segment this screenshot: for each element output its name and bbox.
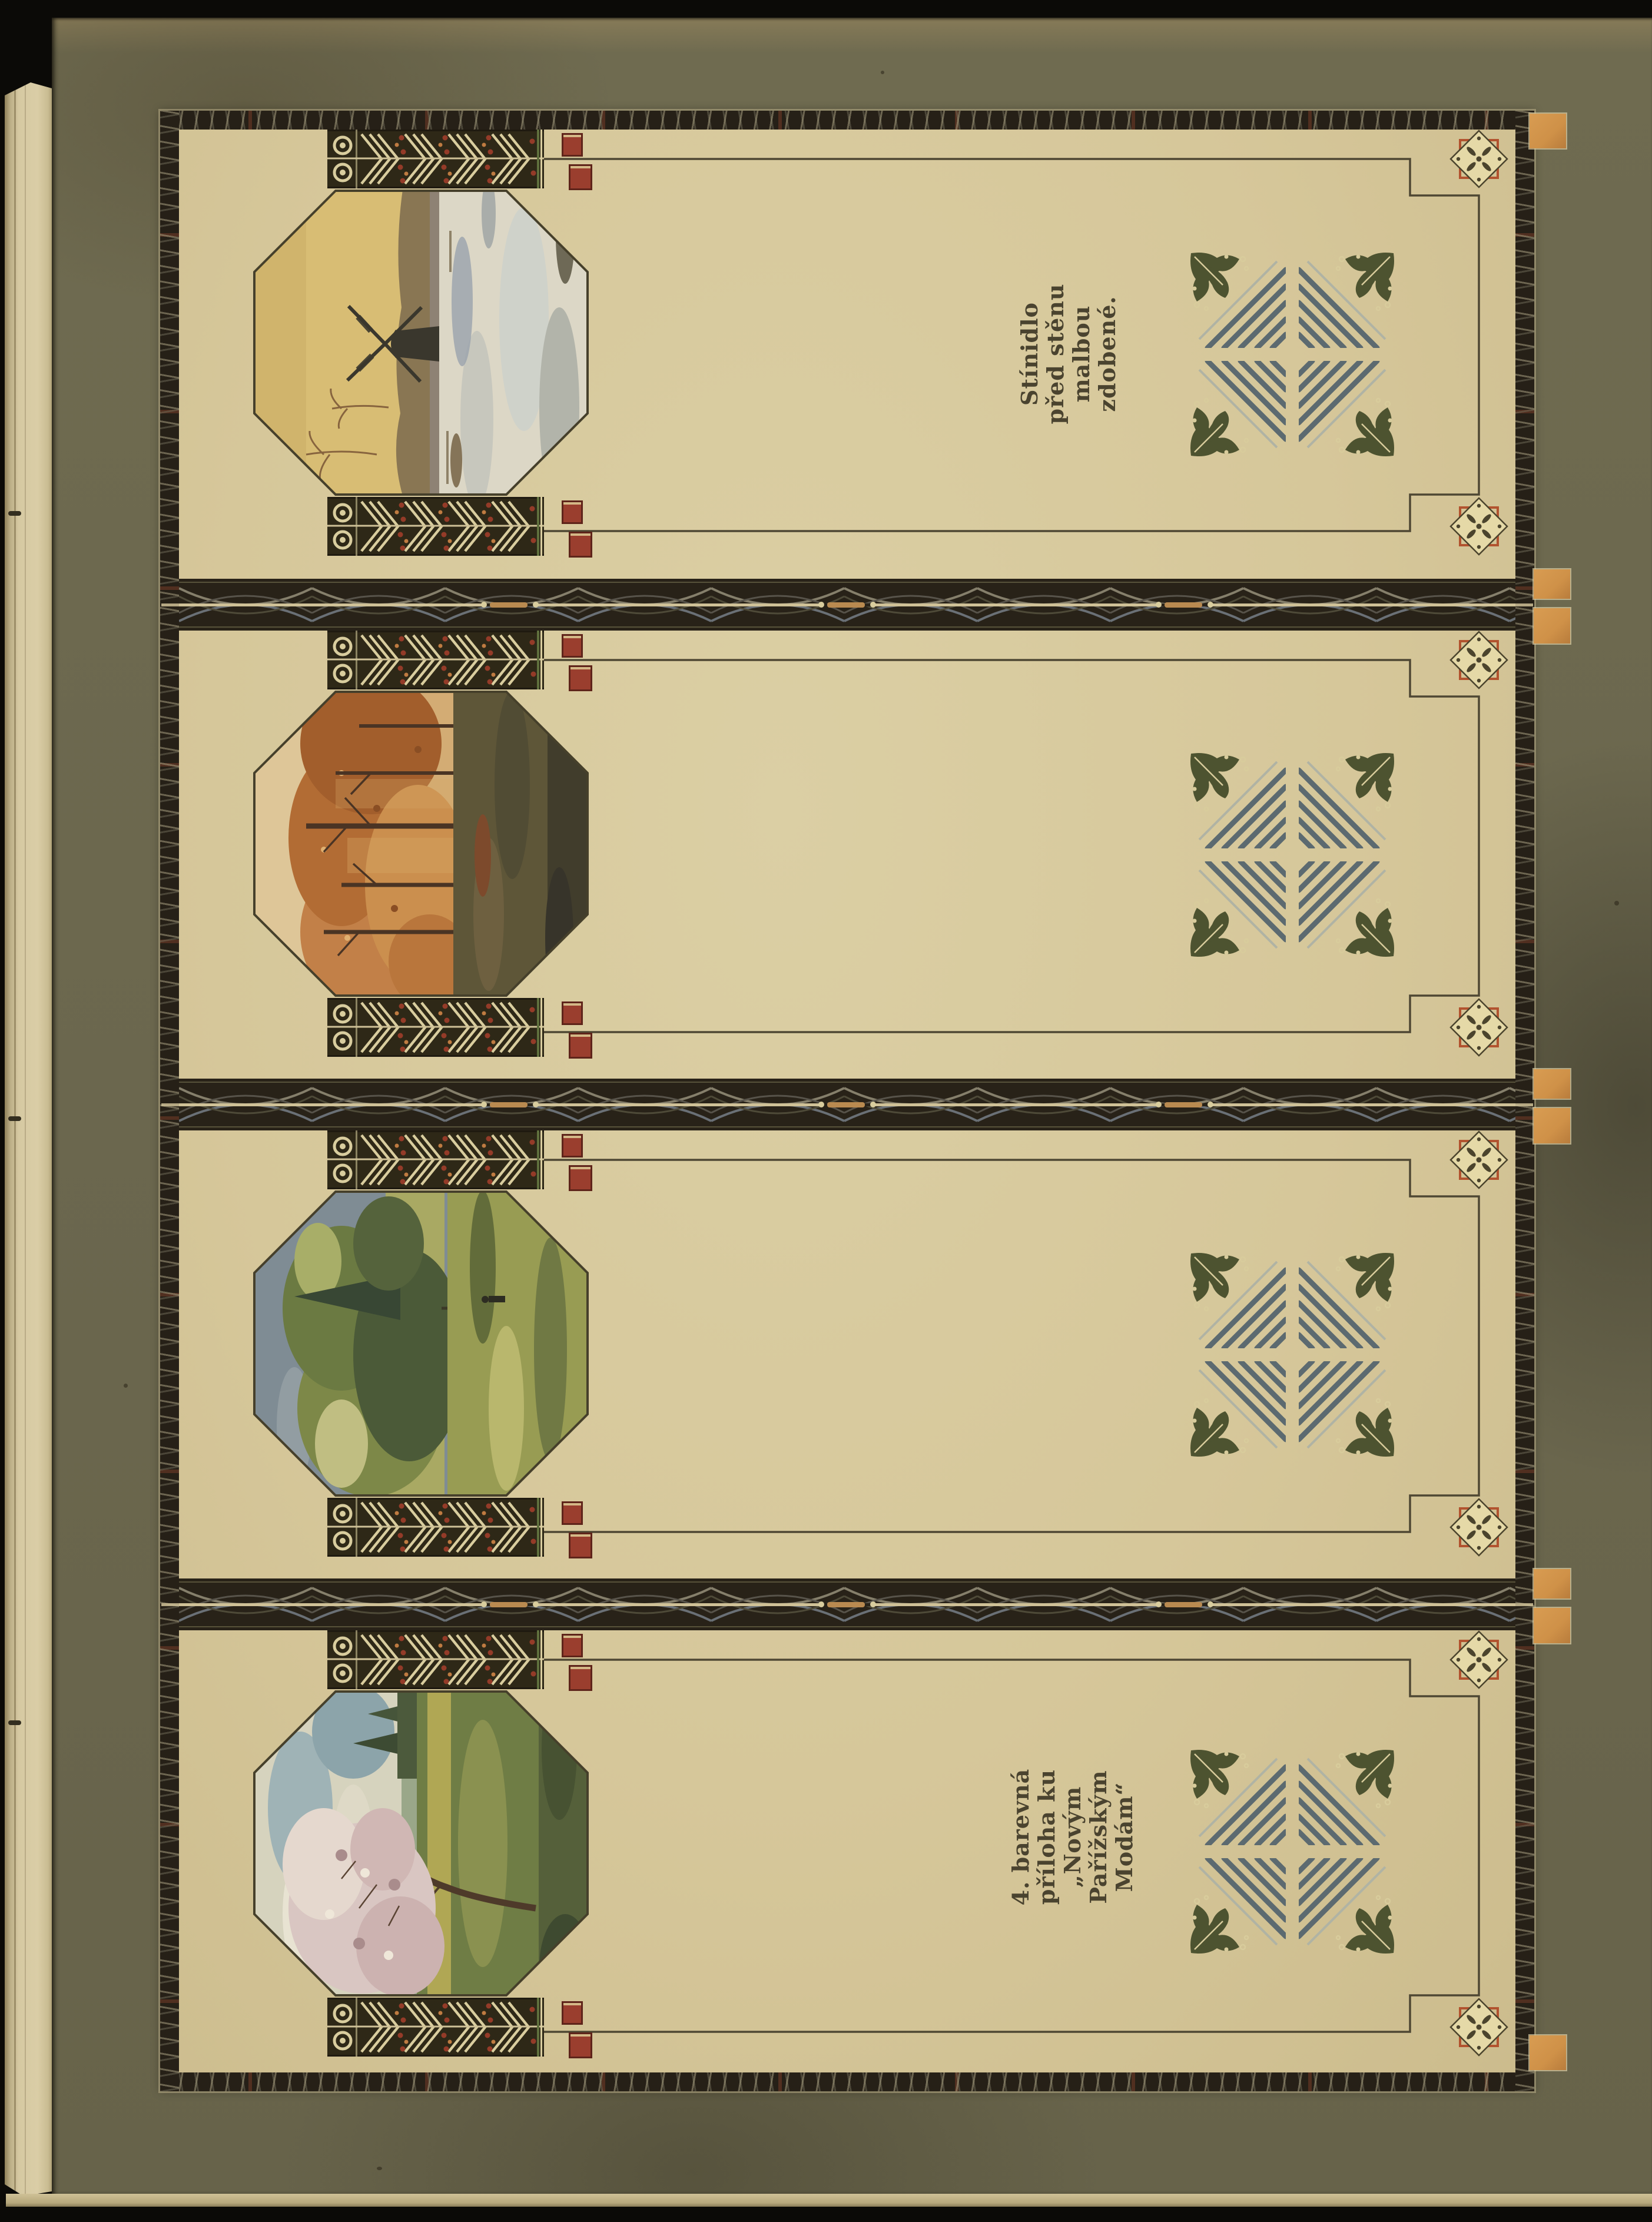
binding-stitch [8,1116,21,1121]
red-square-marker [562,1134,583,1158]
red-square-marker [569,2032,592,2058]
leaf-tile [1299,861,1395,957]
divider-ornament [179,1578,1515,1630]
page-bottom-edge [6,2194,1652,2207]
leaf-tile [1299,252,1395,348]
octagon-painting-autumn-forest [253,691,589,997]
divider-rule-stub [1515,603,1533,606]
speckle [377,2167,382,2170]
chevron-band [327,1498,544,1557]
caption-line: 4. barevná [1008,1769,1034,1906]
divider-ornament [179,579,1515,631]
caption-line: příloha ku [1034,1769,1060,1905]
caption-line: před stěnu [1043,284,1069,424]
red-square-marker [562,1001,583,1025]
chevron-band [327,130,544,188]
caption-line: Pařížským [1086,1770,1112,1903]
leaf-tile-ornament [1190,252,1395,457]
leaf-tile [1190,361,1286,457]
chevron-band [327,631,544,689]
leaf-tile-ornament [1190,1252,1395,1457]
scanned-page: Stínidlo před stěnu malbou zdobené. [0,0,1652,2222]
red-square-marker [562,2001,583,2025]
orange-tab [1534,608,1570,644]
rosette-ornament [1449,497,1508,556]
frame-top-border [160,111,1534,130]
rosette-ornament [1449,130,1508,188]
binding-stitch [8,511,21,516]
chevron-band [327,998,544,1057]
divider-rule-stub [1515,1103,1533,1106]
red-square-marker [569,665,592,691]
chevron-band [327,1130,544,1189]
octagon-painting-spring-blossom [253,1690,589,1997]
frame-right-border [1515,111,1534,2091]
decorative-plate: Stínidlo před stěnu malbou zdobené. [160,111,1534,2091]
rosette-ornament [1449,631,1508,689]
caption-line: zdobené. [1094,296,1120,412]
leaf-tile [1299,1749,1395,1845]
red-square-marker [562,1501,583,1525]
divider-rule-stub [161,1103,179,1106]
leaf-tile [1299,1858,1395,1954]
rosette-ornament [1449,998,1508,1057]
leaf-tile [1190,861,1286,957]
caption-line: malbou [1069,306,1094,403]
divider-rule-stub [161,603,179,606]
leaf-tile [1190,1858,1286,1954]
chevron-band [327,1630,544,1689]
leaf-tile [1299,1361,1395,1457]
orange-tab [1534,1608,1570,1643]
orange-tab [1534,569,1570,599]
chevron-band [327,1998,544,2057]
orange-tab [1534,1569,1570,1598]
caption-line: „Novým [1060,1786,1086,1888]
leaf-tile [1190,252,1286,348]
divider-rule-stub [161,1603,179,1606]
leaf-tile [1299,361,1395,457]
red-square-marker [569,532,592,558]
speckle [1614,901,1619,906]
frame-left-border [160,111,179,2091]
red-square-marker [569,1165,592,1191]
red-square-marker [562,133,583,157]
leaf-tile [1299,752,1395,848]
caption-shade: Stínidlo před stěnu malbou zdobené. [1010,260,1127,448]
leaf-tile-ornament [1190,752,1395,957]
chevron-band [327,497,544,556]
rosette-ornament [1449,1498,1508,1557]
frame-bottom-border [160,2072,1534,2091]
red-square-marker [562,1634,583,1657]
leaf-tile [1190,1252,1286,1348]
red-square-marker [569,1665,592,1691]
speckle [881,71,884,74]
caption-line: Modám“ [1112,1782,1137,1892]
leaf-tile [1190,1749,1286,1845]
leaf-tile [1299,1252,1395,1348]
red-square-marker [562,500,583,524]
orange-tab [1530,114,1566,148]
red-square-marker [569,1533,592,1558]
binding-stitch [8,1720,21,1725]
caption-supplement: 4. barevná příloha ku „Novým Pařížským M… [1014,1743,1132,1931]
rosette-ornament [1449,1630,1508,1689]
divider-rule-stub [1515,1603,1533,1606]
book-page-edges [5,82,52,2196]
divider-ornament [179,1079,1515,1130]
rosette-ornament [1449,1998,1508,2057]
leaf-tile [1190,752,1286,848]
orange-tab [1534,1108,1570,1143]
octagon-painting-summer-trees [253,1190,589,1497]
orange-tab [1534,1069,1570,1099]
red-square-marker [562,634,583,658]
octagon-painting-windmill-winter [253,190,589,496]
leaf-tile [1190,1361,1286,1457]
leaf-tile-ornament [1190,1749,1395,1954]
orange-tab [1530,2035,1566,2070]
caption-line: Stínidlo [1017,302,1043,406]
red-square-marker [569,1033,592,1059]
speckle [124,1384,128,1388]
red-square-marker [569,164,592,190]
rosette-ornament [1449,1130,1508,1189]
